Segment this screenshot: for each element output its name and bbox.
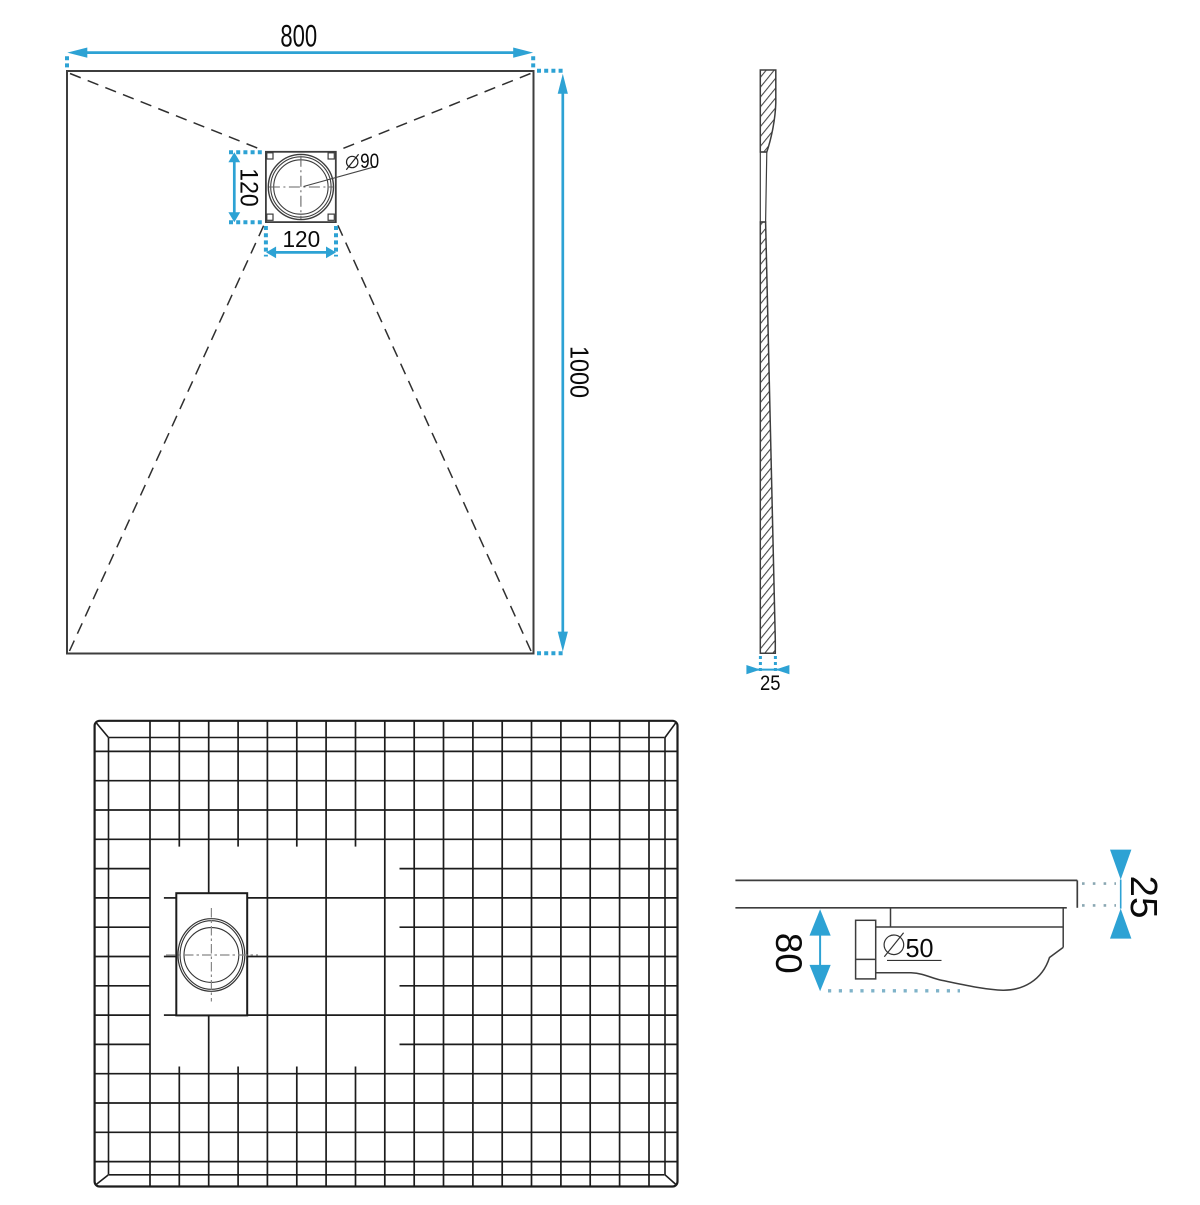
- svg-text:1000: 1000: [564, 346, 592, 398]
- svg-text:80: 80: [768, 933, 809, 974]
- svg-text:25: 25: [760, 671, 781, 695]
- svg-text:90: 90: [360, 150, 379, 173]
- svg-text:50: 50: [906, 933, 934, 963]
- svg-text:25: 25: [1122, 876, 1164, 919]
- svg-text:800: 800: [280, 18, 317, 54]
- svg-text:120: 120: [282, 226, 320, 252]
- svg-text:120: 120: [234, 168, 262, 206]
